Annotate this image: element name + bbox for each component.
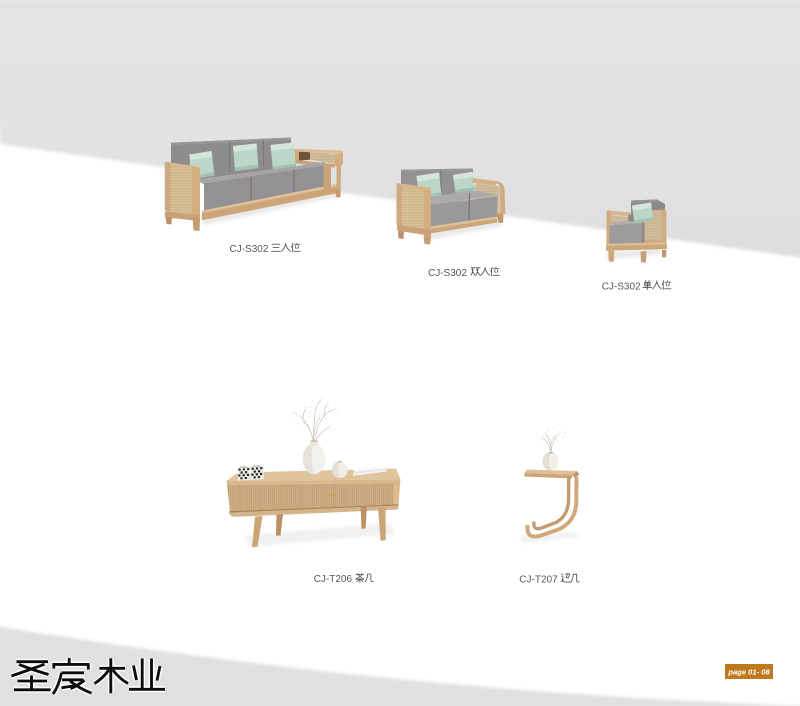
svg-text:CJ-S302: CJ-S302 bbox=[602, 281, 641, 292]
svg-text:CJ-T206: CJ-T206 bbox=[314, 574, 353, 585]
svg-text:CJ-S302: CJ-S302 bbox=[230, 244, 269, 255]
svg-text:CJ-T207: CJ-T207 bbox=[519, 575, 558, 586]
svg-text:CJ-S302: CJ-S302 bbox=[428, 268, 467, 279]
svg-text:page 01- 08: page 01- 08 bbox=[727, 668, 770, 677]
